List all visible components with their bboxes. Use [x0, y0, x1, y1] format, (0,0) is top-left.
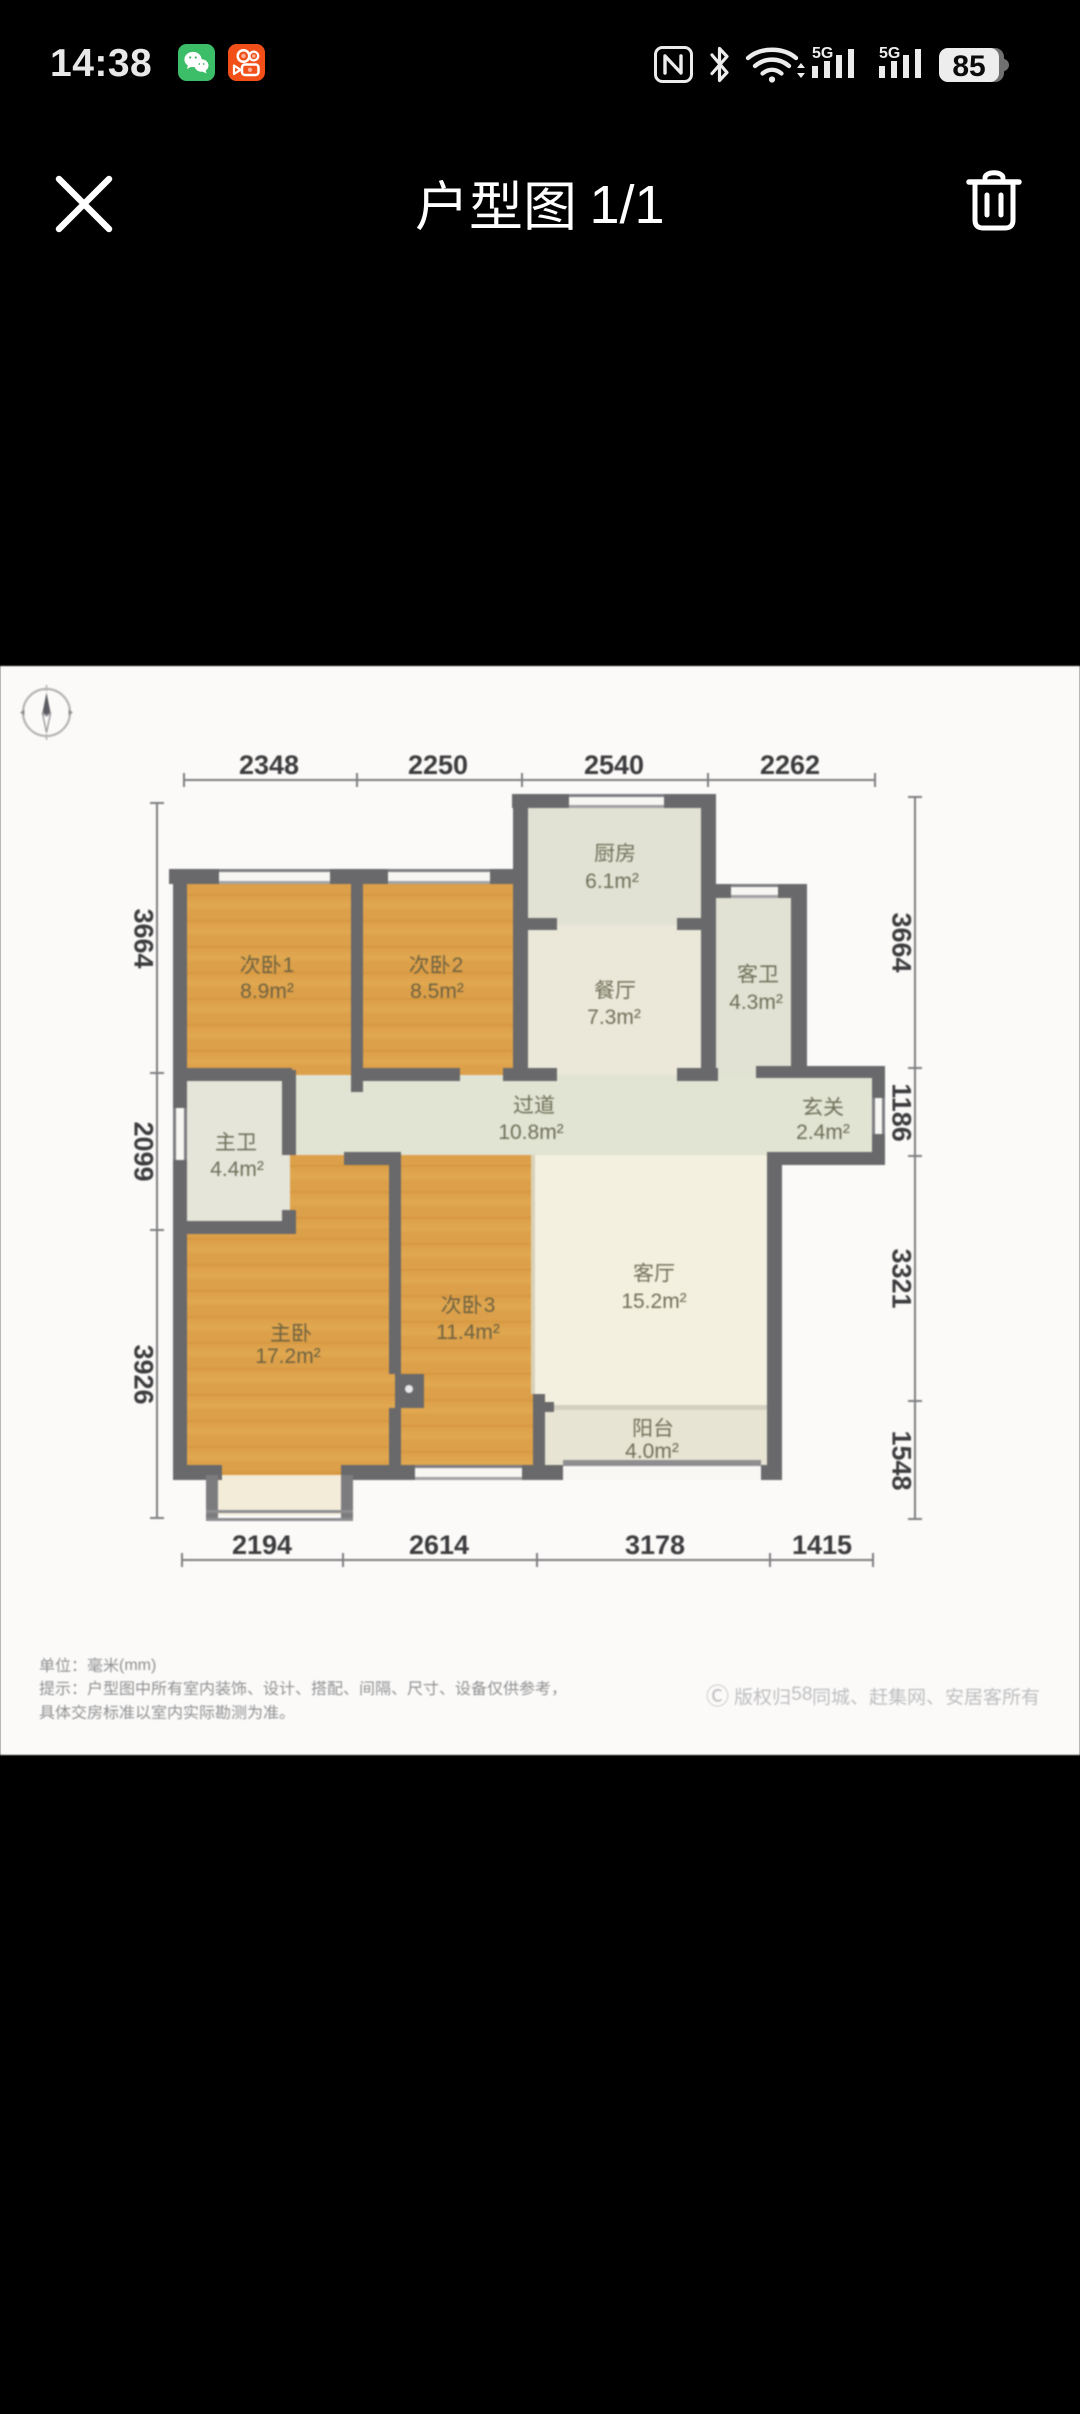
svg-text:5G: 5G: [812, 45, 833, 62]
svg-text:85: 85: [952, 50, 985, 83]
svg-text:5G: 5G: [879, 45, 900, 62]
